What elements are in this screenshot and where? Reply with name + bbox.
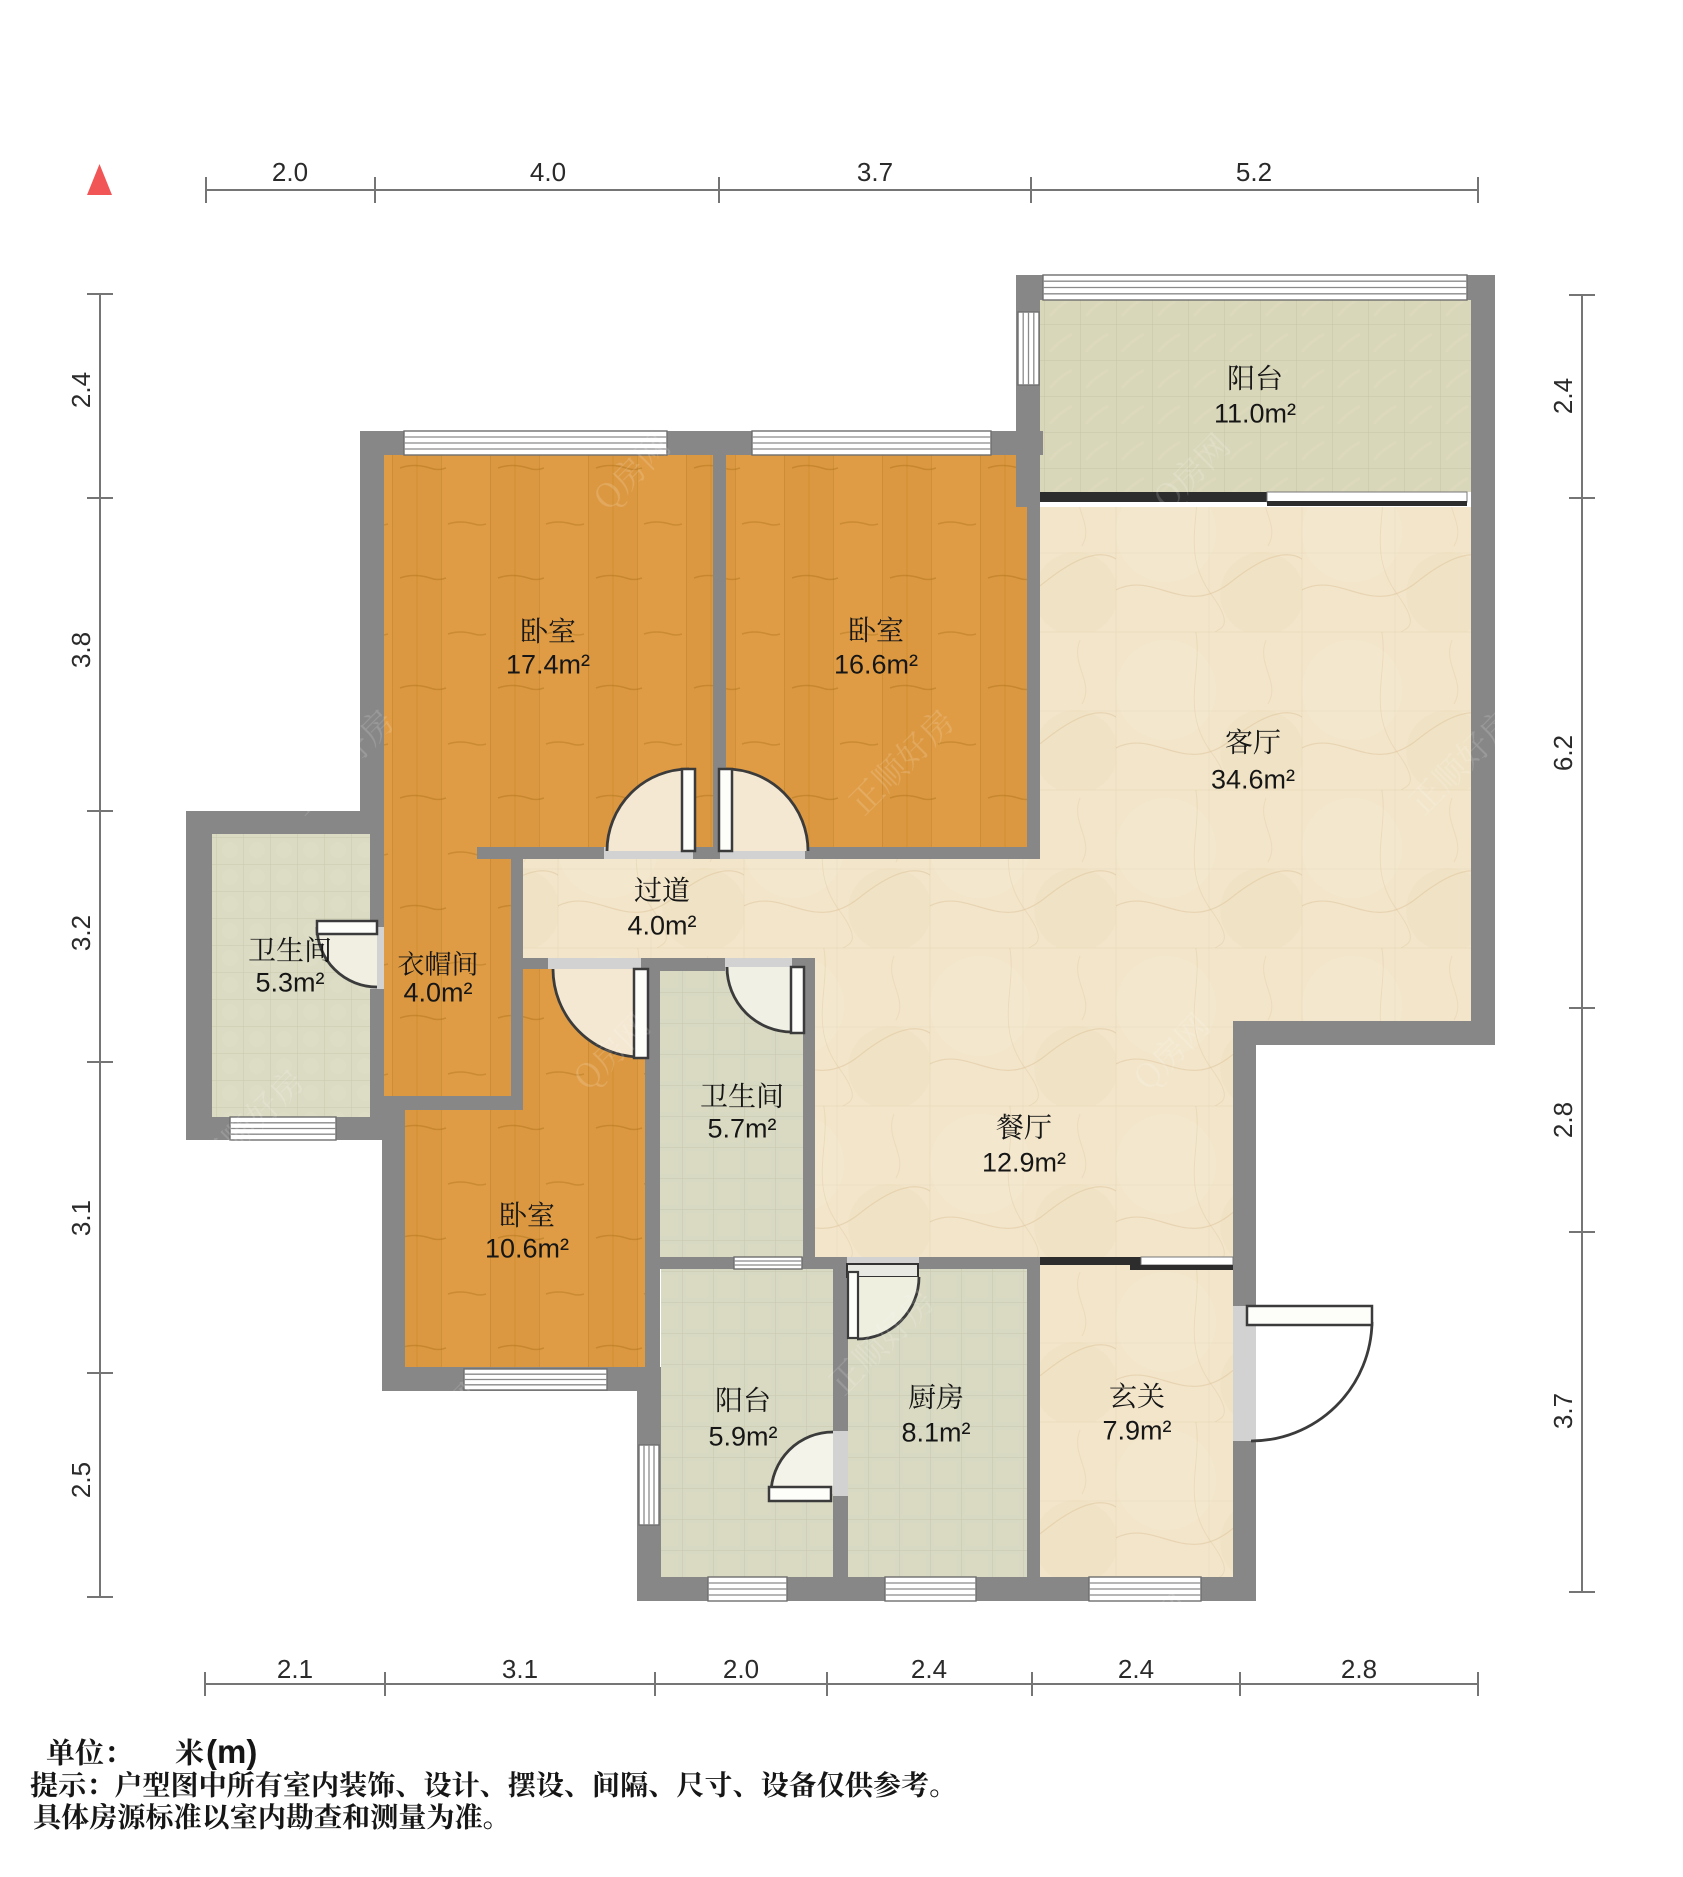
svg-text:2.0: 2.0 bbox=[723, 1654, 759, 1684]
svg-text:3.7: 3.7 bbox=[1548, 1393, 1578, 1429]
svg-text:2.4: 2.4 bbox=[1118, 1654, 1154, 1684]
svg-text:3.2: 3.2 bbox=[66, 915, 96, 951]
svg-text:12.9m²: 12.9m² bbox=[982, 1148, 1066, 1178]
svg-text:2.8: 2.8 bbox=[1548, 1102, 1578, 1138]
svg-text:2.8: 2.8 bbox=[1341, 1654, 1377, 1684]
svg-text:8.1m²: 8.1m² bbox=[901, 1418, 970, 1448]
svg-text:6.2: 6.2 bbox=[1548, 735, 1578, 771]
svg-text:34.6m²: 34.6m² bbox=[1211, 765, 1295, 795]
svg-text:2.4: 2.4 bbox=[911, 1654, 947, 1684]
svg-text:5.9m²: 5.9m² bbox=[708, 1422, 777, 1452]
svg-text:5.3m²: 5.3m² bbox=[255, 968, 324, 998]
svg-text:2.0: 2.0 bbox=[272, 157, 308, 187]
svg-text:2.4: 2.4 bbox=[66, 372, 96, 408]
svg-text:7.9m²: 7.9m² bbox=[1102, 1416, 1171, 1446]
svg-text:4.0: 4.0 bbox=[530, 157, 566, 187]
svg-text:4.0m²: 4.0m² bbox=[627, 911, 696, 941]
svg-text:(m): (m) bbox=[206, 1733, 257, 1770]
svg-text:11.0m²: 11.0m² bbox=[1214, 399, 1296, 429]
svg-text:2.5: 2.5 bbox=[66, 1462, 96, 1498]
svg-text:5.2: 5.2 bbox=[1236, 157, 1272, 187]
svg-text:17.4m²: 17.4m² bbox=[506, 650, 590, 680]
svg-text:3.8: 3.8 bbox=[66, 632, 96, 668]
svg-text:16.6m²: 16.6m² bbox=[834, 650, 918, 680]
svg-text:5.7m²: 5.7m² bbox=[707, 1114, 776, 1144]
svg-text:3.1: 3.1 bbox=[502, 1654, 538, 1684]
svg-text:3.7: 3.7 bbox=[857, 157, 893, 187]
svg-text:10.6m²: 10.6m² bbox=[485, 1234, 569, 1264]
svg-text:2.1: 2.1 bbox=[277, 1654, 313, 1684]
svg-text:2.4: 2.4 bbox=[1548, 378, 1578, 414]
svg-text:3.1: 3.1 bbox=[66, 1200, 96, 1236]
svg-text:4.0m²: 4.0m² bbox=[403, 978, 472, 1008]
